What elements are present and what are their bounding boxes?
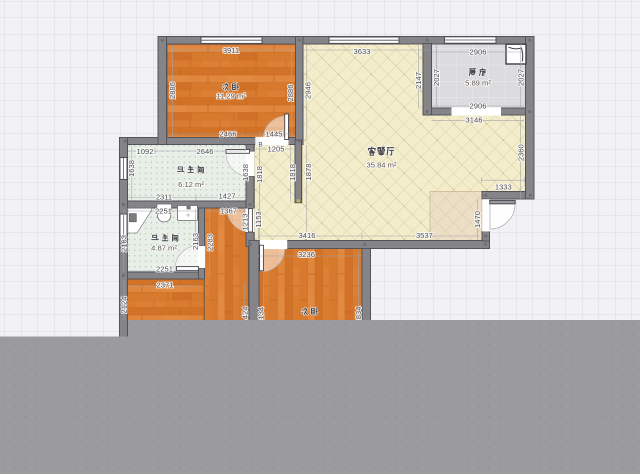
svg-text:1205: 1205 — [268, 145, 285, 154]
svg-text:1092: 1092 — [137, 147, 154, 156]
svg-text:2163: 2163 — [191, 233, 200, 250]
svg-text:6.12 m²: 6.12 m² — [178, 180, 204, 189]
svg-text:1818: 1818 — [255, 166, 264, 183]
svg-text:11.29 m²: 11.29 m² — [216, 92, 246, 101]
svg-text:1638: 1638 — [241, 164, 250, 181]
svg-text:2027: 2027 — [516, 69, 525, 86]
svg-text:2946: 2946 — [304, 82, 313, 99]
svg-text:2906: 2906 — [470, 102, 487, 111]
svg-text:1153: 1153 — [254, 211, 263, 227]
svg-text:2371: 2371 — [157, 281, 174, 290]
svg-text:2251: 2251 — [156, 264, 173, 273]
svg-text:2283: 2283 — [205, 234, 214, 251]
svg-text:3537: 3537 — [416, 231, 433, 240]
svg-text:1638: 1638 — [127, 160, 136, 177]
svg-text:3633: 3633 — [354, 47, 371, 56]
svg-text:3911: 3911 — [223, 46, 239, 55]
svg-text:1333: 1333 — [495, 183, 512, 192]
svg-text:2311: 2311 — [156, 192, 172, 201]
svg-text:1427: 1427 — [219, 191, 236, 200]
svg-text:1470: 1470 — [473, 211, 482, 228]
svg-text:2360: 2360 — [516, 144, 525, 161]
svg-text:B: B — [258, 142, 262, 149]
svg-text:5.89 m²: 5.89 m² — [465, 78, 491, 87]
svg-text:3416: 3416 — [299, 231, 316, 240]
svg-text:1213: 1213 — [240, 214, 249, 231]
svg-text:1878: 1878 — [304, 164, 313, 181]
svg-text:2886: 2886 — [286, 85, 295, 102]
svg-text:3146: 3146 — [466, 115, 483, 124]
svg-text:1367: 1367 — [220, 207, 237, 216]
svg-text:35.84 m²: 35.84 m² — [367, 161, 397, 170]
svg-text:2646: 2646 — [197, 147, 214, 156]
svg-text:1445: 1445 — [266, 130, 283, 139]
svg-text:2027: 2027 — [432, 69, 441, 86]
svg-text:2124: 2124 — [120, 297, 129, 314]
svg-text:2466: 2466 — [220, 130, 237, 139]
svg-text:4.87 m²: 4.87 m² — [151, 244, 177, 253]
svg-text:2251: 2251 — [155, 206, 172, 215]
svg-text:1818: 1818 — [288, 164, 297, 181]
svg-text:2163: 2163 — [119, 235, 128, 252]
svg-text:3236: 3236 — [298, 250, 315, 259]
svg-text:2886: 2886 — [168, 82, 177, 99]
svg-text:2906: 2906 — [470, 48, 487, 57]
svg-text:2147: 2147 — [414, 72, 423, 89]
